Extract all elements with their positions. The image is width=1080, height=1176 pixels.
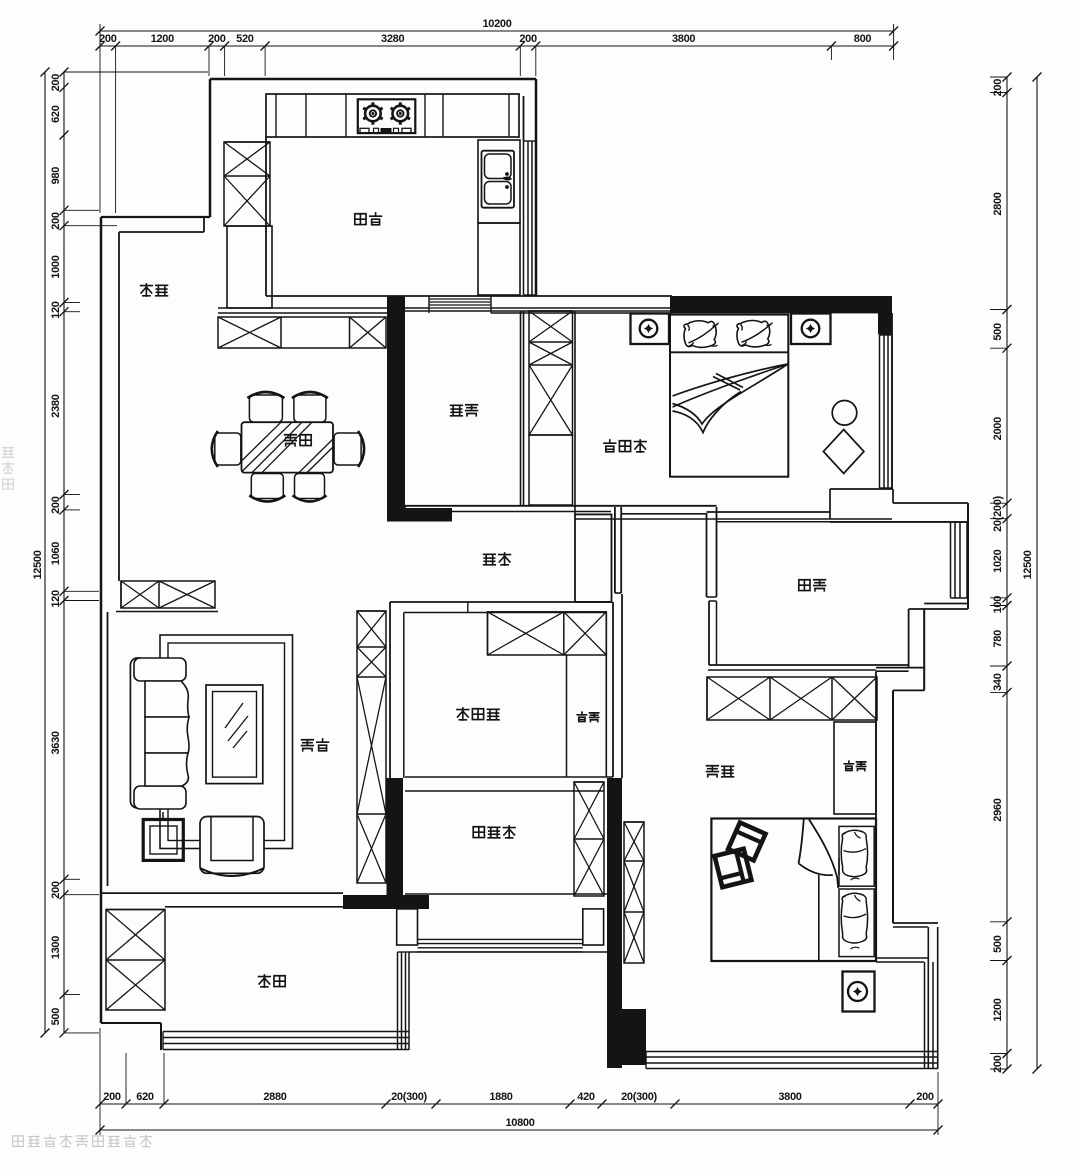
svg-text:2380: 2380 (50, 394, 62, 417)
svg-text:3280: 3280 (381, 33, 404, 45)
svg-text:1300: 1300 (50, 936, 62, 959)
svg-text:200: 200 (103, 1091, 121, 1103)
svg-text:1000: 1000 (50, 255, 62, 278)
svg-text:2880: 2880 (263, 1091, 286, 1103)
svg-text:2960: 2960 (992, 798, 1004, 821)
svg-text:200: 200 (50, 496, 62, 514)
svg-text:340: 340 (992, 673, 1004, 691)
svg-text:1060: 1060 (50, 542, 62, 565)
svg-text:200: 200 (50, 881, 62, 899)
svg-text:20(300): 20(300) (621, 1091, 657, 1103)
svg-text:200: 200 (519, 33, 537, 45)
svg-text:800: 800 (854, 33, 872, 45)
svg-text:200: 200 (992, 79, 1004, 97)
svg-text:1200: 1200 (151, 33, 174, 45)
svg-text:200: 200 (916, 1091, 934, 1103)
svg-text:120: 120 (50, 301, 62, 319)
svg-text:200: 200 (50, 74, 62, 92)
svg-text:620: 620 (50, 105, 62, 123)
svg-text:200: 200 (50, 212, 62, 230)
svg-text:10200: 10200 (482, 18, 511, 30)
svg-text:20(300): 20(300) (391, 1091, 427, 1103)
svg-text:3800: 3800 (672, 33, 695, 45)
svg-text:100: 100 (992, 596, 1004, 614)
svg-text:120: 120 (50, 590, 62, 608)
svg-text:1200: 1200 (992, 998, 1004, 1021)
svg-text:10800: 10800 (505, 1117, 534, 1129)
svg-text:2000: 2000 (992, 417, 1004, 440)
svg-text:620: 620 (136, 1091, 154, 1103)
svg-text:12500: 12500 (1022, 550, 1034, 579)
svg-text:200: 200 (992, 1055, 1004, 1073)
svg-text:12500: 12500 (32, 550, 44, 579)
svg-text:500: 500 (992, 935, 1004, 953)
svg-text:200: 200 (99, 33, 117, 45)
svg-text:500: 500 (992, 323, 1004, 341)
svg-text:200: 200 (208, 33, 226, 45)
svg-text:520: 520 (236, 33, 254, 45)
svg-text:20(200): 20(200) (992, 495, 1004, 531)
svg-text:980: 980 (50, 167, 62, 185)
svg-text:3630: 3630 (50, 731, 62, 754)
svg-text:780: 780 (992, 630, 1004, 648)
svg-text:1880: 1880 (489, 1091, 512, 1103)
svg-text:420: 420 (577, 1091, 595, 1103)
svg-text:500: 500 (50, 1008, 62, 1026)
svg-text:2800: 2800 (992, 192, 1004, 215)
svg-text:1020: 1020 (992, 549, 1004, 572)
svg-text:3800: 3800 (778, 1091, 801, 1103)
